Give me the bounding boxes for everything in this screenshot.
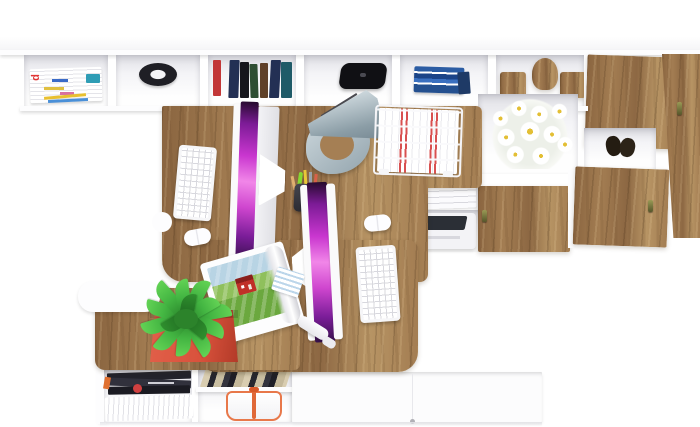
keyboard-2-keys	[359, 248, 398, 320]
paper-fan	[105, 394, 194, 421]
letter-tray-foot-left	[379, 169, 389, 175]
monitor-1	[228, 101, 284, 263]
drawer-front	[292, 372, 542, 422]
round-tray	[139, 63, 177, 86]
desk-edge-notch	[152, 212, 172, 232]
letter-tray-foot-right	[443, 171, 453, 177]
dark-magazine-3	[108, 385, 190, 394]
magazine-title-dash	[148, 382, 174, 384]
book-teal	[281, 62, 292, 98]
letter-tray	[373, 104, 463, 179]
magazine-stack	[29, 67, 102, 103]
oak-door-low	[573, 166, 670, 247]
oak-door-right-handle	[677, 102, 682, 115]
magazine-red-dot	[133, 384, 142, 393]
book-brown	[260, 63, 268, 98]
plant-core	[174, 309, 198, 329]
drawer-seam	[412, 374, 413, 420]
book-navy-1	[228, 60, 239, 98]
magazine-spine-mark-blue	[52, 79, 68, 82]
book-red	[213, 60, 221, 96]
keyboard-1-keys	[176, 148, 214, 219]
magazine-spine-letter: d	[31, 74, 42, 81]
navy-book-sliver	[457, 72, 471, 95]
book-black	[240, 62, 249, 98]
speaker-button	[360, 73, 366, 77]
magazine-spine-mark-yellow	[44, 87, 64, 90]
bottom-unit-shadow	[100, 422, 542, 426]
book-navy-2	[269, 60, 281, 98]
oak-door-mid	[478, 186, 570, 252]
wood-block-cylinder	[532, 58, 558, 90]
keyboard-1	[173, 144, 217, 221]
oak-door-mid-handle	[482, 210, 487, 222]
oak-door-low-handle	[648, 200, 653, 212]
book-green	[249, 64, 258, 98]
wire-basket-strap	[252, 389, 256, 419]
wire-basket-knob	[249, 387, 259, 392]
letter-tray-wires	[373, 104, 463, 177]
magazine-spine-mark-teal	[86, 74, 100, 83]
office-top-view: d	[0, 0, 700, 427]
keyboard-2	[355, 245, 400, 324]
wall-cabinet-top	[0, 0, 700, 52]
daisy-bouquet	[484, 97, 576, 169]
